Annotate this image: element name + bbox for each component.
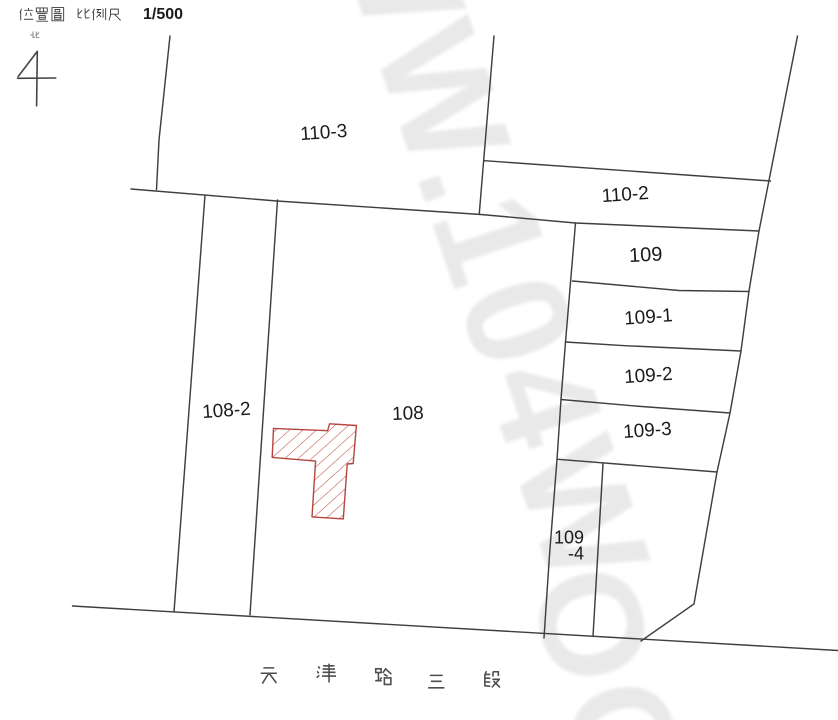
svg-text:108: 108 [392, 403, 424, 425]
svg-text:109-2: 109-2 [623, 364, 673, 388]
svg-text:1/500: 1/500 [143, 6, 183, 23]
svg-text:109: 109 [629, 243, 663, 267]
svg-text:109-1: 109-1 [623, 305, 673, 329]
svg-text:110-3: 110-3 [299, 121, 348, 145]
svg-text:109-3: 109-3 [622, 419, 672, 443]
svg-text:-4: -4 [568, 544, 584, 564]
svg-text:110-2: 110-2 [601, 183, 650, 207]
svg-text:108-2: 108-2 [201, 399, 251, 423]
